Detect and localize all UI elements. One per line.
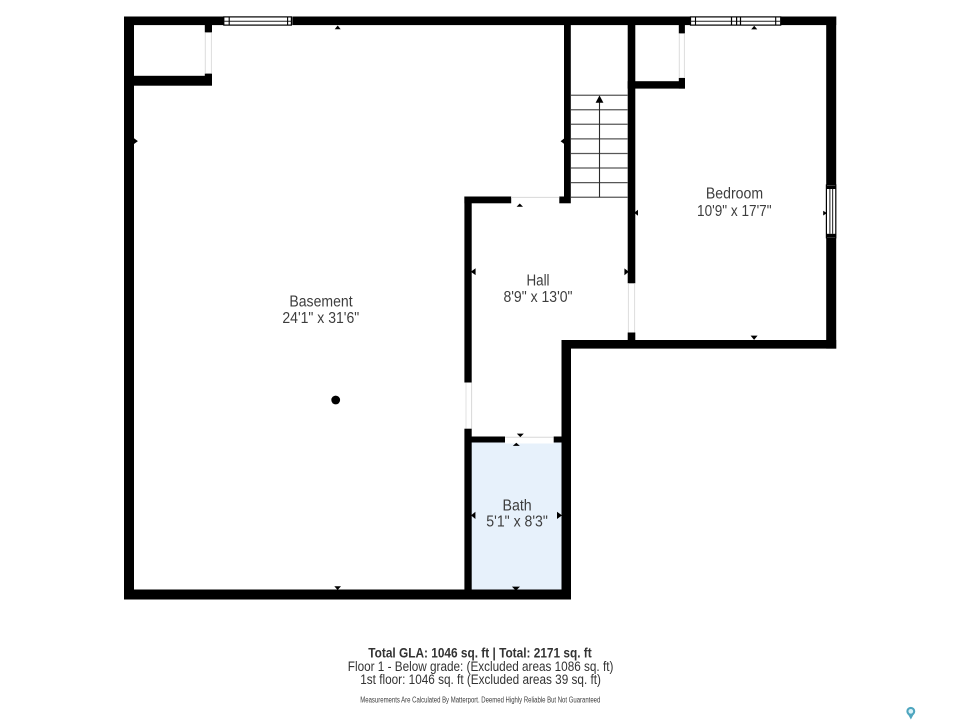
svg-text:Measurements Are Calculated By: Measurements Are Calculated By Matterpor…: [360, 695, 600, 704]
svg-text:Hall: Hall: [526, 273, 549, 290]
svg-text:8'9" x 13'0": 8'9" x 13'0": [503, 289, 572, 306]
svg-text:5'1" x 8'3": 5'1" x 8'3": [486, 514, 548, 531]
svg-text:1st floor: 1046 sq. ft (Exclud: 1st floor: 1046 sq. ft (Excluded areas 3…: [360, 672, 601, 687]
svg-text:Bath: Bath: [503, 497, 532, 514]
svg-text:10'9" x 17'7": 10'9" x 17'7": [697, 203, 772, 220]
svg-text:Bedroom: Bedroom: [706, 185, 763, 202]
svg-text:Basement: Basement: [289, 293, 353, 310]
svg-text:24'1" x 31'6": 24'1" x 31'6": [282, 310, 359, 327]
